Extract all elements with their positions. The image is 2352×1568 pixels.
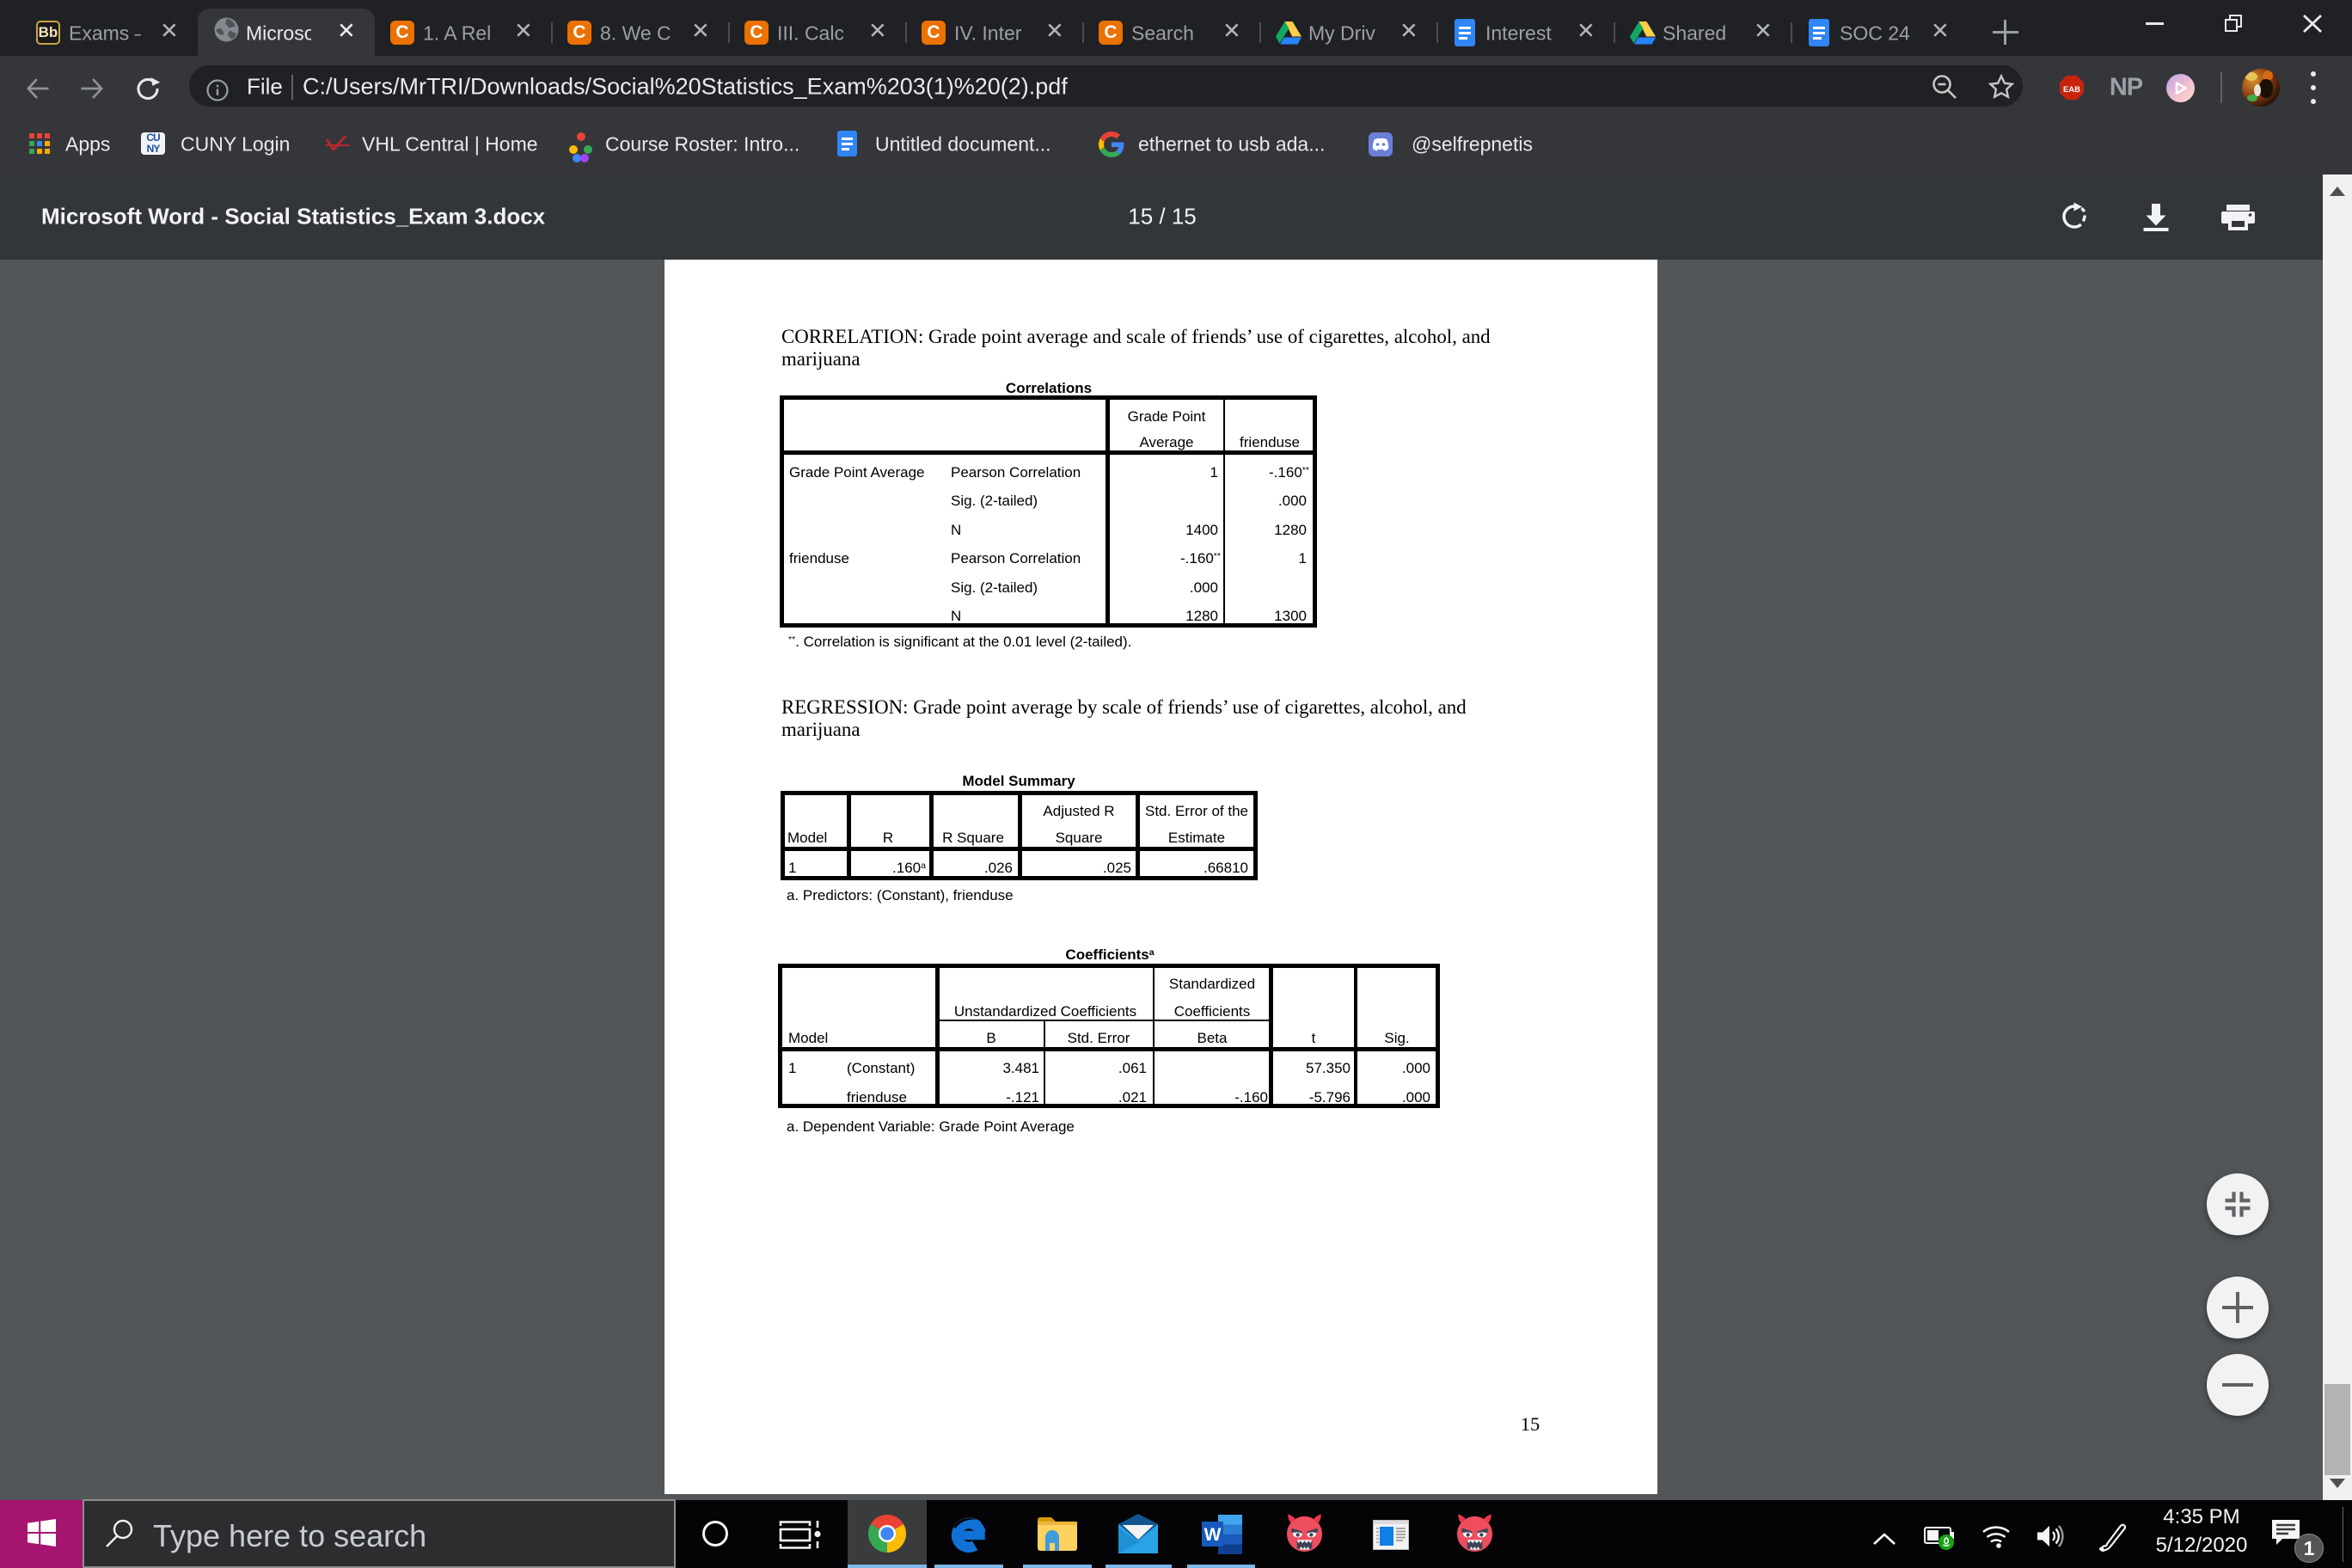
svg-text:EAB: EAB xyxy=(2063,85,2080,95)
svg-text:W: W xyxy=(1204,1525,1222,1545)
